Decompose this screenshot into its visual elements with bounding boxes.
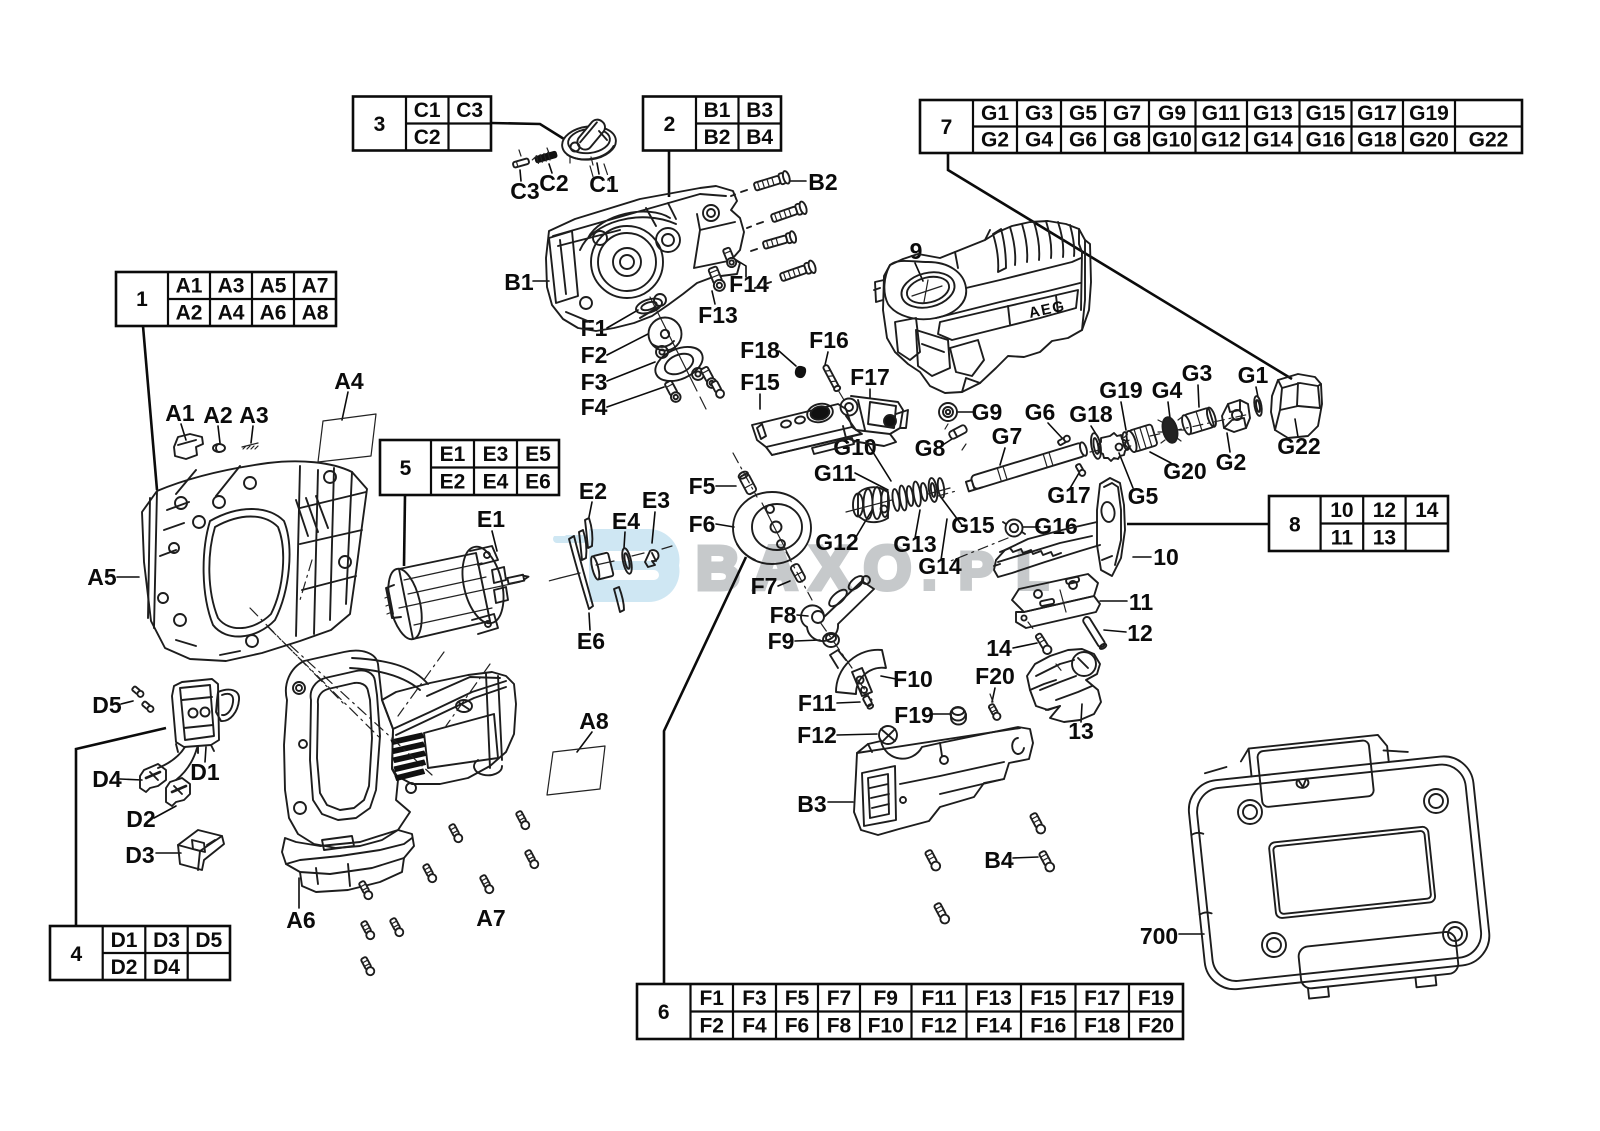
svg-text:2: 2: [664, 113, 676, 136]
svg-text:B2: B2: [704, 126, 731, 149]
svg-text:B3: B3: [797, 791, 826, 817]
svg-text:C1: C1: [589, 171, 619, 197]
svg-text:A2: A2: [203, 402, 232, 428]
svg-text:G20: G20: [1409, 129, 1449, 152]
svg-text:A4: A4: [334, 368, 364, 394]
svg-text:F9: F9: [873, 987, 898, 1010]
svg-text:F17: F17: [850, 364, 890, 390]
svg-text:E6: E6: [525, 471, 551, 494]
svg-text:B1: B1: [504, 269, 534, 295]
svg-text:A6: A6: [286, 907, 315, 933]
svg-text:G19: G19: [1409, 102, 1449, 125]
svg-text:F13: F13: [976, 987, 1012, 1010]
svg-text:G17: G17: [1047, 482, 1090, 508]
svg-text:C3: C3: [510, 178, 539, 204]
svg-text:E4: E4: [612, 508, 640, 534]
svg-text:F8: F8: [770, 602, 797, 628]
svg-text:D5: D5: [195, 929, 222, 952]
svg-text:G2: G2: [1216, 449, 1247, 475]
svg-text:E1: E1: [440, 443, 466, 466]
svg-text:7: 7: [941, 116, 953, 139]
svg-text:G3: G3: [1182, 360, 1213, 386]
svg-text:G18: G18: [1069, 401, 1113, 427]
svg-text:B1: B1: [704, 99, 731, 122]
svg-text:G9: G9: [1158, 102, 1186, 125]
svg-text:F7: F7: [827, 987, 852, 1010]
svg-text:5: 5: [400, 457, 412, 480]
svg-text:E2: E2: [579, 478, 607, 504]
svg-text:14: 14: [986, 635, 1012, 661]
svg-text:3: 3: [374, 113, 386, 136]
svg-text:F7: F7: [751, 573, 778, 599]
svg-text:G15: G15: [951, 512, 995, 538]
svg-text:G8: G8: [1113, 129, 1141, 152]
svg-text:G8: G8: [915, 435, 946, 461]
svg-text:G15: G15: [1306, 102, 1346, 125]
svg-text:F16: F16: [809, 327, 849, 353]
svg-text:G7: G7: [1113, 102, 1141, 125]
svg-text:E3: E3: [483, 443, 509, 466]
svg-text:11: 11: [1129, 589, 1154, 615]
svg-text:G7: G7: [992, 423, 1023, 449]
svg-text:F4: F4: [742, 1015, 767, 1038]
svg-text:F18: F18: [1084, 1015, 1121, 1038]
svg-text:E4: E4: [483, 471, 509, 494]
svg-text:F11: F11: [798, 690, 837, 716]
svg-text:G12: G12: [1201, 129, 1241, 152]
svg-text:G18: G18: [1357, 129, 1397, 152]
svg-text:F11: F11: [921, 987, 956, 1010]
svg-text:C2: C2: [539, 170, 568, 196]
svg-text:F20: F20: [975, 663, 1015, 689]
svg-text:E1: E1: [477, 506, 505, 532]
svg-text:E3: E3: [642, 487, 670, 513]
svg-text:G17: G17: [1357, 102, 1397, 125]
svg-text:B2: B2: [808, 169, 837, 195]
svg-text:G11: G11: [814, 460, 856, 486]
svg-text:F10: F10: [893, 666, 933, 692]
svg-text:C1: C1: [414, 99, 441, 122]
svg-text:D5: D5: [92, 692, 122, 718]
svg-text:A4: A4: [218, 302, 245, 325]
svg-text:G1: G1: [981, 102, 1009, 125]
svg-text:G6: G6: [1069, 129, 1097, 152]
svg-text:A1: A1: [176, 275, 203, 298]
svg-text:A7: A7: [476, 905, 505, 931]
svg-text:F6: F6: [689, 511, 716, 537]
svg-text:F6: F6: [785, 1015, 810, 1038]
svg-text:A1: A1: [165, 400, 195, 426]
svg-text:G5: G5: [1069, 102, 1097, 125]
svg-text:D3: D3: [125, 842, 154, 868]
svg-text:F14: F14: [976, 1015, 1013, 1038]
svg-text:G14: G14: [918, 553, 962, 579]
svg-text:F8: F8: [827, 1015, 852, 1038]
svg-text:G2: G2: [981, 129, 1009, 152]
svg-text:F5: F5: [689, 473, 716, 499]
svg-text:F2: F2: [699, 1015, 724, 1038]
svg-text:G10: G10: [1152, 129, 1192, 152]
svg-text:G19: G19: [1099, 377, 1142, 403]
svg-text:G14: G14: [1253, 129, 1293, 152]
svg-text:D4: D4: [92, 766, 122, 792]
svg-text:F12: F12: [797, 722, 837, 748]
svg-text:A8: A8: [302, 302, 329, 325]
svg-text:12: 12: [1127, 620, 1153, 646]
svg-text:10: 10: [1153, 544, 1179, 570]
svg-text:D2: D2: [126, 806, 155, 832]
svg-text:F9: F9: [768, 628, 795, 654]
svg-text:G9: G9: [972, 399, 1003, 425]
svg-text:G4: G4: [1152, 377, 1183, 403]
svg-text:F3: F3: [581, 369, 608, 395]
svg-text:F20: F20: [1138, 1015, 1174, 1038]
svg-text:F12: F12: [921, 1015, 957, 1038]
svg-text:F15: F15: [740, 369, 780, 395]
svg-text:G3: G3: [1025, 102, 1053, 125]
svg-text:F4: F4: [581, 394, 608, 420]
svg-text:F16: F16: [1030, 1015, 1066, 1038]
svg-text:A3: A3: [218, 275, 245, 298]
svg-text:A5: A5: [260, 275, 287, 298]
svg-text:D2: D2: [111, 956, 138, 979]
svg-text:D1: D1: [190, 759, 220, 785]
svg-text:B4: B4: [746, 126, 773, 149]
svg-text:11: 11: [1331, 527, 1354, 550]
svg-text:12: 12: [1373, 499, 1396, 522]
svg-text:F19: F19: [894, 702, 934, 728]
svg-text:E2: E2: [440, 471, 466, 494]
svg-text:G4: G4: [1025, 129, 1053, 152]
svg-text:F3: F3: [742, 987, 767, 1010]
svg-text:B4: B4: [984, 847, 1014, 873]
svg-text:10: 10: [1330, 499, 1353, 522]
svg-text:E6: E6: [577, 628, 605, 654]
svg-text:F19: F19: [1138, 987, 1174, 1010]
svg-text:D3: D3: [153, 929, 180, 952]
svg-text:6: 6: [658, 1001, 670, 1024]
svg-text:F1: F1: [699, 987, 724, 1010]
svg-text:D1: D1: [111, 929, 138, 952]
svg-text:A2: A2: [176, 302, 203, 325]
svg-text:14: 14: [1415, 499, 1439, 522]
svg-text:13: 13: [1373, 527, 1396, 550]
svg-text:F2: F2: [581, 342, 608, 368]
svg-text:B3: B3: [746, 99, 773, 122]
svg-text:A8: A8: [579, 708, 609, 734]
svg-text:A7: A7: [302, 275, 329, 298]
svg-text:A3: A3: [239, 402, 268, 428]
svg-text:G13: G13: [1253, 102, 1293, 125]
svg-text:F15: F15: [1030, 987, 1067, 1010]
svg-text:G6: G6: [1025, 399, 1056, 425]
svg-text:A6: A6: [260, 302, 287, 325]
svg-text:8: 8: [1289, 514, 1301, 537]
svg-text:9: 9: [910, 238, 923, 264]
svg-text:F5: F5: [785, 987, 810, 1010]
svg-text:F18: F18: [740, 337, 780, 363]
svg-text:G11: G11: [1202, 102, 1241, 125]
svg-text:G16: G16: [1306, 129, 1346, 152]
svg-text:C2: C2: [414, 126, 441, 149]
svg-text:F17: F17: [1084, 987, 1120, 1010]
svg-text:700: 700: [1140, 923, 1178, 949]
svg-text:G22: G22: [1469, 129, 1509, 152]
svg-text:G1: G1: [1238, 362, 1269, 388]
svg-text:G12: G12: [815, 529, 858, 555]
svg-text:E5: E5: [525, 443, 551, 466]
svg-text:1: 1: [136, 288, 148, 311]
svg-text:F10: F10: [868, 1015, 904, 1038]
svg-text:A5: A5: [87, 564, 117, 590]
svg-text:F13: F13: [698, 302, 738, 328]
svg-text:C3: C3: [456, 99, 483, 122]
svg-text:D4: D4: [153, 956, 180, 979]
svg-text:4: 4: [70, 943, 82, 966]
